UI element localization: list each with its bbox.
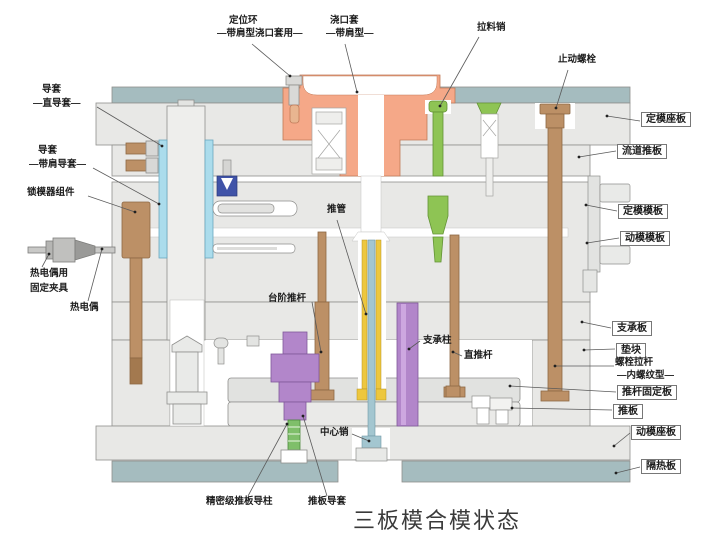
label-insulation-plate: 隔热板 bbox=[641, 459, 681, 474]
plate-bolt-white-1-shaft bbox=[477, 408, 489, 424]
lock-bolt-2 bbox=[126, 160, 148, 171]
return-pin-body bbox=[176, 352, 198, 392]
mold-lock-block bbox=[122, 202, 150, 258]
pull-pin-shaft bbox=[433, 112, 443, 176]
label-plate-bushing: 推板导套 bbox=[308, 497, 346, 507]
sprue-channel bbox=[361, 176, 381, 232]
precision-pillar-spring bbox=[288, 420, 300, 450]
label-precision-pillar: 精密级推板导柱 bbox=[206, 497, 273, 507]
stepped-pin-upper bbox=[318, 232, 326, 302]
label-support-plate: 支承板 bbox=[612, 321, 652, 336]
label-pull-pin: 拉料销 bbox=[477, 23, 506, 33]
gate-flare bbox=[352, 232, 390, 241]
plate-bolt-white-2-shaft bbox=[496, 410, 508, 424]
label-guide-bushing-shoulder: 导套 bbox=[38, 146, 57, 156]
puller-bolt-top bbox=[316, 112, 342, 124]
locating-ring-bolt-shaft bbox=[289, 85, 299, 105]
sprue-puller-bolt bbox=[312, 108, 346, 174]
lock-rod-tip bbox=[130, 358, 142, 384]
tie-rod-foot bbox=[541, 391, 569, 401]
pull-pin-head bbox=[429, 101, 447, 112]
sprue-bore bbox=[358, 95, 384, 176]
label-locating-ring-sub: —带肩型浇口套用— bbox=[217, 29, 303, 39]
thermocouple-body bbox=[53, 238, 75, 262]
side-lock-tab bbox=[583, 270, 597, 292]
label-fixed-clamp-plate: 定模座板 bbox=[641, 112, 691, 127]
support-pillar-highlight bbox=[401, 304, 406, 425]
label-thermocouple-clamp: 热电偶用 bbox=[30, 269, 68, 279]
center-pin bbox=[368, 240, 375, 436]
diagram-caption: 三板模合模状态 bbox=[353, 503, 521, 535]
label-sprue-bushing-sub: —带肩型— bbox=[326, 29, 374, 39]
sleeve-wall-right bbox=[376, 240, 381, 389]
label-sprue-bushing: 浇口套 bbox=[330, 16, 359, 26]
label-spacer-block: 垫块 bbox=[616, 343, 646, 358]
plate-bolt-white-1-head bbox=[472, 396, 490, 408]
support-pillar bbox=[397, 303, 418, 426]
lock-nut-1 bbox=[146, 141, 158, 156]
bottom-insulation-left bbox=[112, 461, 338, 482]
side-lock-bolt-2 bbox=[600, 246, 630, 264]
locating-ring-bolt-tip bbox=[290, 105, 299, 123]
center-pin-foot bbox=[356, 448, 387, 461]
label-moving-mold-plate: 动模模板 bbox=[620, 231, 670, 246]
straight-pin-shaft bbox=[450, 235, 459, 387]
puller-tie-rod bbox=[548, 128, 562, 391]
label-stop-bolt: 止动螺栓 bbox=[558, 55, 596, 65]
pull-pin-tip bbox=[433, 237, 443, 262]
locating-ring-bolt-head bbox=[286, 76, 302, 85]
thermocouple-clamp-flange bbox=[46, 241, 53, 259]
mold-cross-section-svg bbox=[0, 0, 715, 543]
thermocouple-probe bbox=[95, 247, 115, 253]
guide-bushing-right bbox=[205, 140, 213, 258]
label-ejector-retainer-plate: 推杆固定板 bbox=[617, 385, 677, 400]
label-straight-pin: 直推杆 bbox=[464, 351, 493, 361]
guide-bushing-left bbox=[159, 140, 167, 258]
label-mold-lock: 锁模器组件 bbox=[27, 188, 75, 198]
label-guide-bushing-straight: 导套 bbox=[42, 85, 61, 95]
precision-pillar-pad bbox=[281, 450, 307, 463]
label-fixed-mold-plate: 定模模板 bbox=[618, 204, 668, 219]
label-guide-bushing-straight-sub: —直导套— bbox=[33, 99, 81, 109]
label-runner-stripper-plate: 流道推板 bbox=[617, 144, 667, 159]
stop-pin-2 bbox=[247, 336, 259, 346]
puller-bolt-bottom bbox=[316, 158, 342, 170]
label-thermocouple-clamp-sub: 固定夹具 bbox=[30, 284, 68, 294]
sleeve-foot-right bbox=[376, 389, 386, 400]
thermocouple-lead-left bbox=[28, 247, 46, 253]
precision-pillar-mid bbox=[279, 382, 311, 402]
label-support-pillar: 支承柱 bbox=[423, 336, 452, 346]
label-ejector-plate: 推板 bbox=[613, 404, 643, 419]
label-puller-bolt: 螺栓拉杆 bbox=[615, 358, 653, 368]
label-moving-clamp-plate: 动模座板 bbox=[631, 425, 681, 440]
lock-rod bbox=[130, 258, 142, 358]
return-pin-foot bbox=[173, 404, 201, 424]
return-pin-flange bbox=[167, 392, 207, 404]
label-locating-ring: 定位环 bbox=[229, 16, 258, 26]
lock-nut-2 bbox=[146, 158, 158, 173]
center-pin-collar bbox=[362, 436, 381, 448]
secondary-pull-pin-pin bbox=[486, 158, 493, 196]
stop-pin-head bbox=[214, 338, 228, 348]
plate-bolt-white-2-head bbox=[490, 398, 512, 410]
slide-pin-upper bbox=[218, 204, 274, 213]
precision-pillar-block bbox=[271, 354, 319, 382]
bottom-insulation-right bbox=[402, 461, 630, 482]
label-ejector-sleeve: 推管 bbox=[327, 205, 346, 215]
plate-bolt-brown bbox=[446, 386, 460, 397]
label-center-pin: 中心销 bbox=[320, 428, 349, 438]
label-stepped-pin: 台阶推杆 bbox=[268, 294, 306, 304]
stepped-pin-foot bbox=[310, 390, 334, 400]
stop-bolt-neck bbox=[546, 114, 564, 128]
sleeve-foot-left bbox=[357, 389, 367, 400]
lock-bolt-1 bbox=[126, 143, 148, 154]
insert-pin bbox=[223, 160, 231, 176]
stop-pin-shaft bbox=[218, 348, 224, 364]
mold-diagram: 定位环 —带肩型浇口套用— 浇口套 —带肩型— 拉料销 止动螺栓 导套 —直导套… bbox=[0, 0, 715, 543]
precision-pillar-top bbox=[283, 332, 307, 354]
side-lock-bolt-1 bbox=[600, 184, 630, 202]
label-thermocouple: 热电偶 bbox=[70, 303, 99, 313]
label-puller-bolt-sub: —内螺纹型— bbox=[617, 371, 674, 381]
locating-ring-recess bbox=[303, 76, 437, 95]
side-lock-bar bbox=[588, 176, 600, 272]
label-guide-bushing-shoulder-sub: —带肩导套— bbox=[29, 160, 86, 170]
slide-pin-lower bbox=[217, 247, 277, 250]
stop-bolt-head bbox=[540, 104, 570, 114]
thermocouple-cone bbox=[75, 240, 95, 260]
